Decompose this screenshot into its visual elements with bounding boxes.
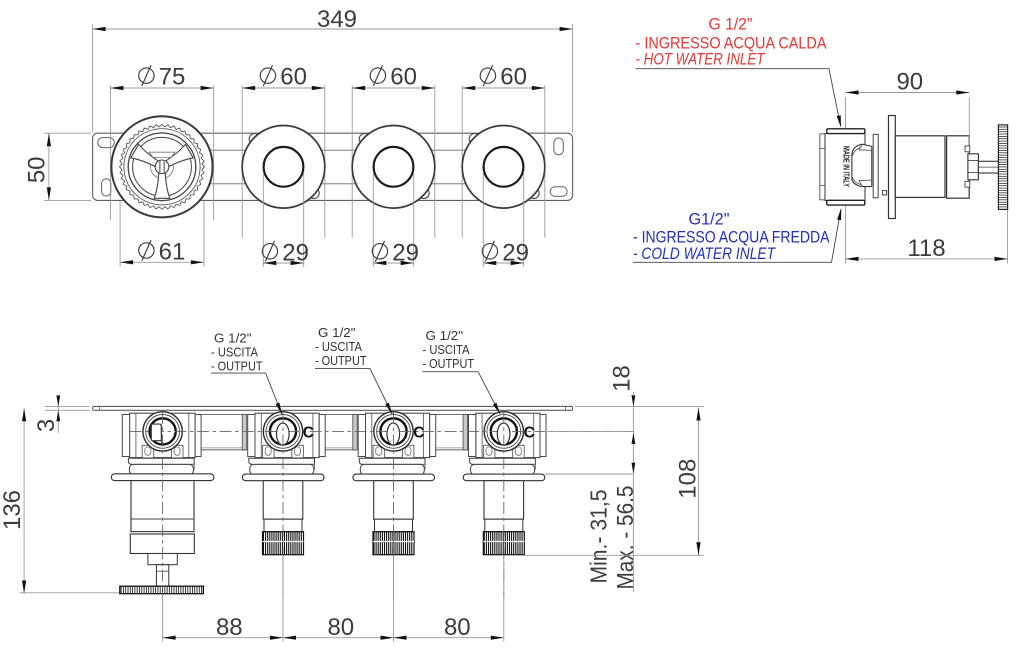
svg-text:G1/2": G1/2"	[689, 211, 730, 229]
svg-text:29: 29	[502, 239, 529, 266]
svg-text:G 1/2": G 1/2"	[214, 331, 252, 346]
svg-text:29: 29	[282, 239, 309, 266]
svg-text:3: 3	[33, 419, 60, 432]
svg-text:- USCITA: - USCITA	[423, 342, 470, 357]
svg-text:349: 349	[317, 6, 357, 33]
svg-text:90: 90	[896, 69, 923, 96]
svg-text:80: 80	[444, 614, 471, 641]
svg-text:50: 50	[23, 156, 50, 183]
svg-text:- OUTPUT: - OUTPUT	[315, 353, 367, 368]
svg-text:- USCITA: - USCITA	[211, 345, 258, 360]
svg-text:- OUTPUT: - OUTPUT	[211, 359, 263, 374]
svg-text:136: 136	[0, 490, 26, 530]
svg-text:- COLD WATER INLET: - COLD WATER INLET	[633, 245, 777, 263]
svg-text:118: 118	[907, 235, 945, 262]
svg-text:G 1/2": G 1/2"	[426, 328, 464, 343]
svg-text:- HOT WATER INLET: - HOT WATER INLET	[636, 51, 767, 69]
svg-text:Max. - 56.5: Max. - 56.5	[612, 486, 638, 590]
svg-text:- OUTPUT: - OUTPUT	[423, 356, 475, 371]
svg-text:60: 60	[500, 64, 527, 91]
svg-text:29: 29	[392, 239, 419, 266]
svg-text:- USCITA: - USCITA	[315, 339, 362, 354]
svg-text:G 1/2": G 1/2"	[318, 325, 356, 340]
svg-text:61: 61	[159, 239, 186, 266]
svg-text:108: 108	[674, 459, 701, 499]
svg-text:MADE IN ITALY: MADE IN ITALY	[841, 146, 850, 187]
svg-text:G 1/2": G 1/2"	[709, 16, 753, 34]
svg-text:75: 75	[159, 64, 186, 91]
svg-text:C: C	[303, 424, 314, 441]
svg-text:- INGRESSO ACQUA FREDDA: - INGRESSO ACQUA FREDDA	[633, 229, 830, 247]
svg-text:80: 80	[327, 614, 354, 641]
svg-text:Min.- 31,5: Min.- 31,5	[586, 490, 612, 584]
svg-text:88: 88	[216, 614, 243, 641]
svg-text:60: 60	[280, 64, 307, 91]
svg-text:60: 60	[390, 64, 417, 91]
svg-text:C: C	[524, 424, 535, 441]
svg-text:18: 18	[609, 365, 636, 392]
svg-text:C: C	[413, 424, 424, 441]
